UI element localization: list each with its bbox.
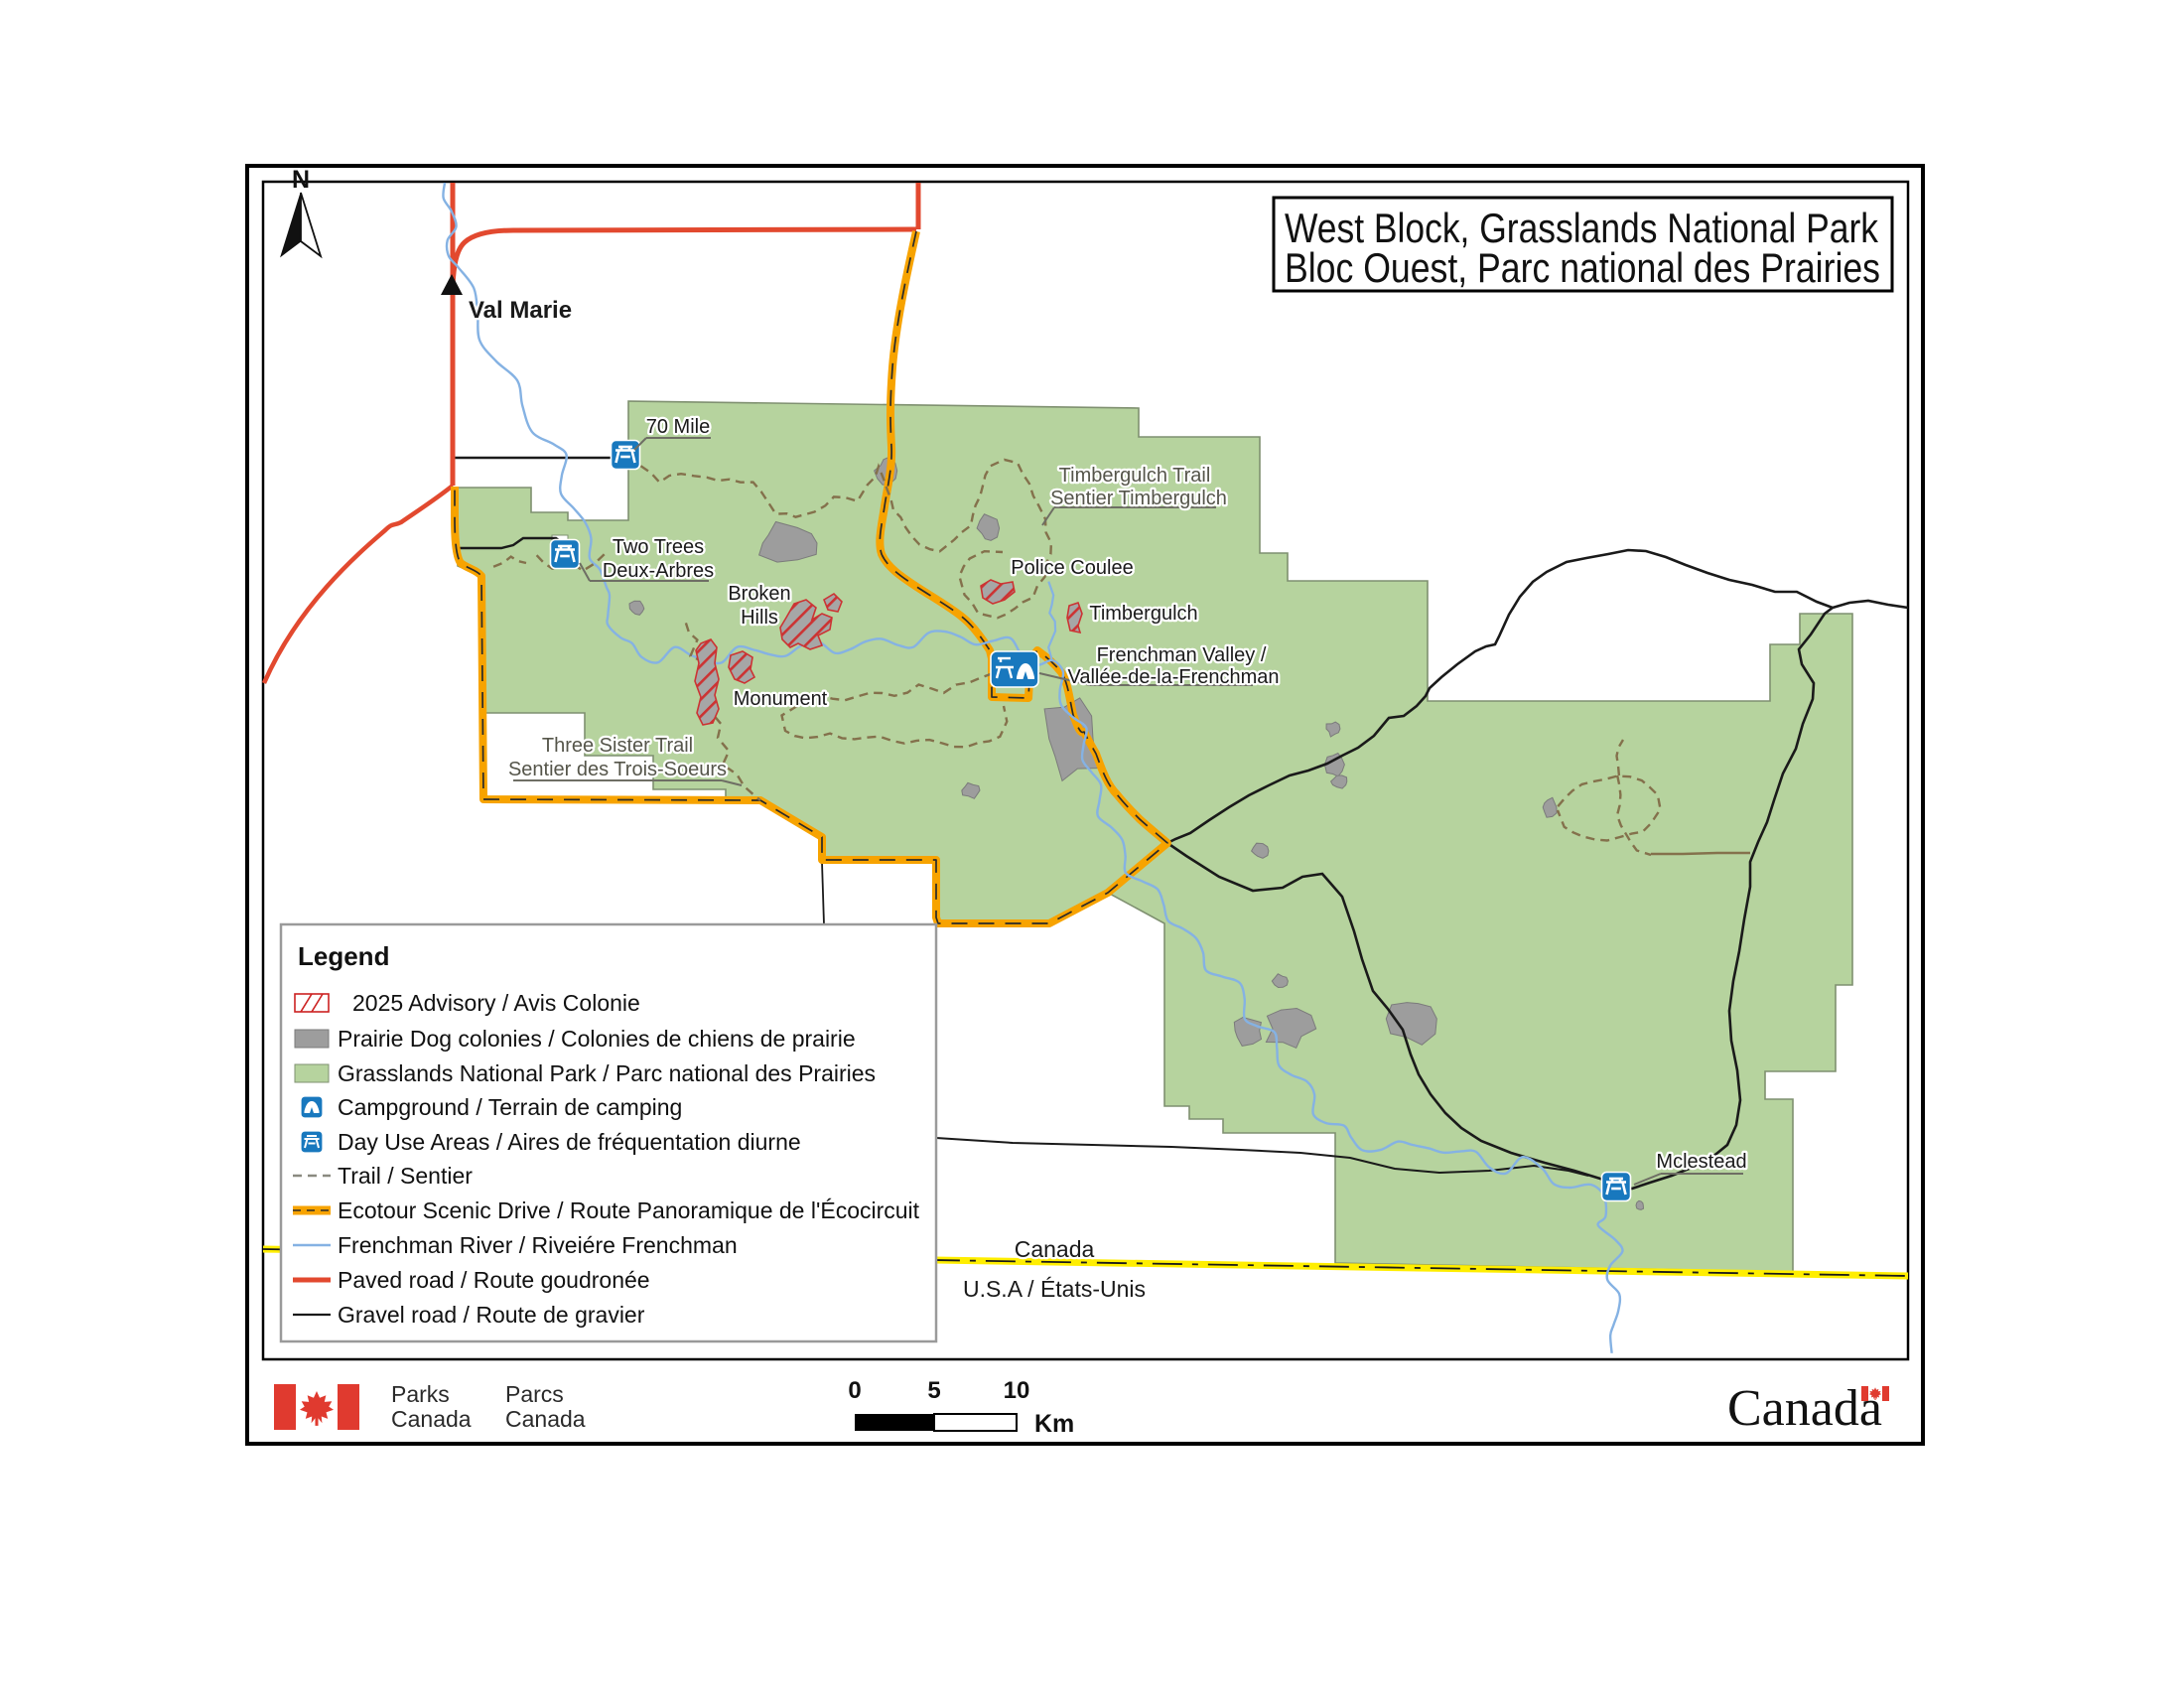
svg-text:Monument: Monument (734, 688, 828, 710)
svg-text:Vallée-de-la-Frenchman: Vallée-de-la-Frenchman (1067, 666, 1279, 688)
svg-text:Canada: Canada (1015, 1236, 1095, 1262)
svg-text:Timbergulch: Timbergulch (1089, 603, 1197, 625)
svg-text:Canada: Canada (505, 1406, 586, 1432)
svg-text:Hills: Hills (741, 607, 778, 629)
svg-text:Parks: Parks (391, 1381, 450, 1407)
svg-text:Prairie Dog colonies / Colonie: Prairie Dog colonies / Colonies de chien… (338, 1026, 856, 1052)
svg-text:Gravel road / Route de gravier: Gravel road / Route de gravier (338, 1302, 645, 1328)
svg-text:Sentier des Trois-Soeurs: Sentier des Trois-Soeurs (508, 759, 727, 780)
svg-text:U.S.A / États-Unis: U.S.A / États-Unis (963, 1276, 1146, 1302)
svg-text:Three Sister Trail: Three Sister Trail (542, 735, 693, 757)
svg-text:Legend: Legend (298, 941, 389, 971)
svg-text:Parcs: Parcs (505, 1381, 564, 1407)
svg-text:Police Coulee: Police Coulee (1011, 557, 1133, 579)
svg-text:Campground / Terrain de campin: Campground / Terrain de camping (338, 1094, 682, 1120)
svg-text:Bloc Ouest, Parc national des: Bloc Ouest, Parc national des Prairies (1285, 244, 1880, 291)
svg-text:Mclestead: Mclestead (1656, 1151, 1746, 1173)
svg-text:Deux-Arbres: Deux-Arbres (603, 560, 714, 582)
svg-text:Two Trees: Two Trees (613, 536, 704, 558)
svg-text:Canada: Canada (391, 1406, 472, 1432)
svg-text:10: 10 (1004, 1377, 1030, 1404)
svg-text:Frenchman River / Riveiére Fre: Frenchman River / Riveiére Frenchman (338, 1232, 738, 1258)
svg-text:Val Marie: Val Marie (469, 297, 572, 324)
svg-text:Ecotour Scenic Drive / Route P: Ecotour Scenic Drive / Route Panoramique… (338, 1197, 920, 1223)
svg-text:Day Use Areas / Aires de fréqu: Day Use Areas / Aires de fréquentation d… (338, 1129, 801, 1155)
svg-text:0: 0 (848, 1377, 861, 1404)
svg-text:Grasslands National Park / Par: Grasslands National Park / Parc national… (338, 1060, 876, 1086)
svg-text:Timbergulch Trail: Timbergulch Trail (1059, 465, 1211, 487)
svg-text:70 Mile: 70 Mile (646, 416, 710, 438)
svg-text:2025 Advisory / Avis Colonie: 2025 Advisory / Avis Colonie (352, 990, 640, 1016)
svg-text:Sentier Timbergulch: Sentier Timbergulch (1050, 488, 1227, 509)
svg-text:Km: Km (1034, 1410, 1074, 1438)
svg-text:5: 5 (927, 1377, 940, 1404)
svg-text:N: N (292, 166, 310, 194)
svg-text:Trail / Sentier: Trail / Sentier (338, 1163, 473, 1189)
svg-text:Canada: Canada (1727, 1380, 1882, 1437)
svg-text:Broken: Broken (728, 583, 790, 605)
svg-text:Frenchman Valley /: Frenchman Valley / (1097, 644, 1267, 666)
svg-text:Paved road / Route goudronée: Paved road / Route goudronée (338, 1267, 650, 1293)
